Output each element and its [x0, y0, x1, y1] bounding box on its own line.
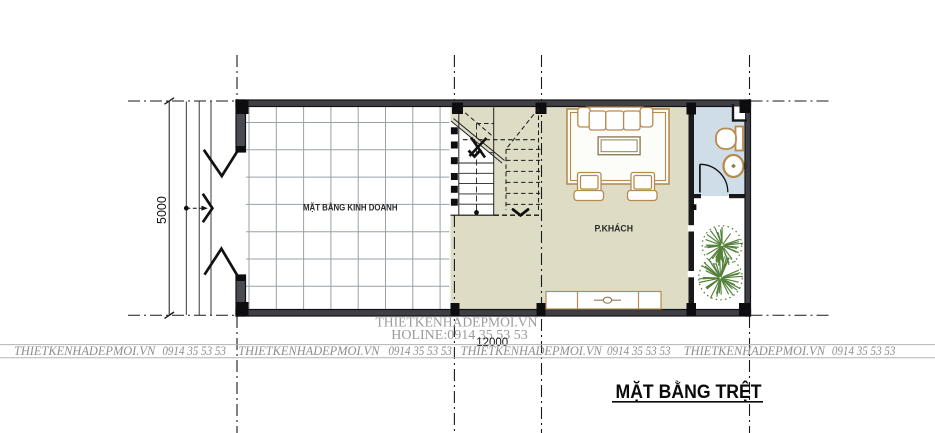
svg-text:0914 35 53 53: 0914 35 53 53 — [607, 343, 671, 358]
svg-text:5000: 5000 — [155, 196, 169, 224]
svg-text:THIETKENHADEPMOI.VN: THIETKENHADEPMOI.VN — [238, 343, 380, 358]
svg-text:THIETKENHADEPMOI.VN: THIETKENHADEPMOI.VN — [684, 343, 826, 358]
svg-text:MẶT BẰNG KINH DOANH: MẶT BẰNG KINH DOANH — [303, 203, 398, 213]
svg-text:0914 35 53 53: 0914 35 53 53 — [832, 343, 896, 358]
svg-text:THIETKENHADEPMOI.VN: THIETKENHADEPMOI.VN — [14, 343, 156, 358]
svg-text:0914 35 53 53: 0914 35 53 53 — [162, 343, 226, 358]
svg-text:MẶT BẰNG TRỆT: MẶT BẰNG TRỆT — [616, 381, 762, 403]
svg-text:0914 35 53 53: 0914 35 53 53 — [388, 343, 452, 358]
svg-text:P.KHÁCH: P.KHÁCH — [595, 224, 634, 234]
svg-text:THIETKENHADEPMOI.VN: THIETKENHADEPMOI.VN — [461, 343, 603, 358]
